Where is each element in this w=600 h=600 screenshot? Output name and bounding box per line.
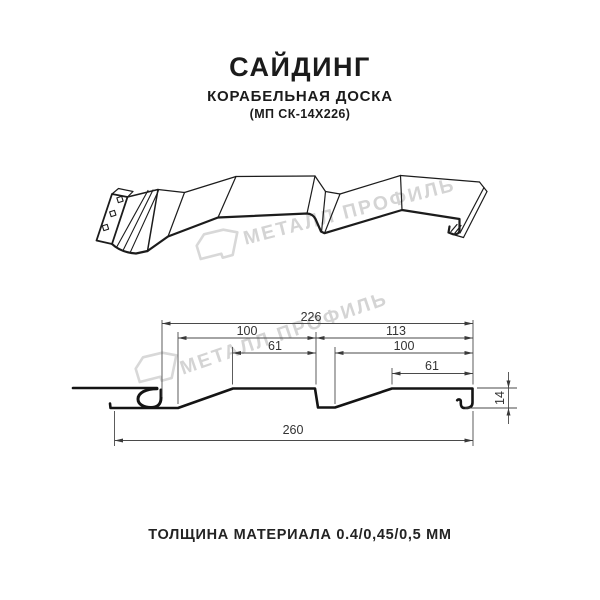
dim-right-inner-pitch: 100 [394, 339, 415, 353]
dim-overall-top: 226 [301, 310, 322, 324]
page-title: САЙДИНГ [0, 52, 600, 83]
dimension-lines [115, 320, 518, 446]
dim-right-flat: 61 [425, 359, 439, 373]
dim-left-flat: 61 [268, 339, 282, 353]
dim-left-pitch: 100 [237, 324, 258, 338]
dim-right-pitch: 113 [386, 324, 406, 338]
page-subtitle: КОРАБЕЛЬНАЯ ДОСКА [0, 88, 600, 105]
material-thickness-caption: ТОЛЩИНА МАТЕРИАЛА 0.4/0,45/0,5 ММ [0, 527, 600, 543]
dim-profile-height: 14 [493, 391, 507, 405]
dim-overall-bottom: 260 [283, 423, 304, 437]
model-code: (МП СК-14Х226) [0, 107, 600, 121]
profile-3d-drawing [97, 176, 488, 254]
metall-profil-logo-icon [136, 230, 238, 382]
dimension-arrows [115, 322, 511, 443]
cross-section-drawing [73, 388, 473, 408]
